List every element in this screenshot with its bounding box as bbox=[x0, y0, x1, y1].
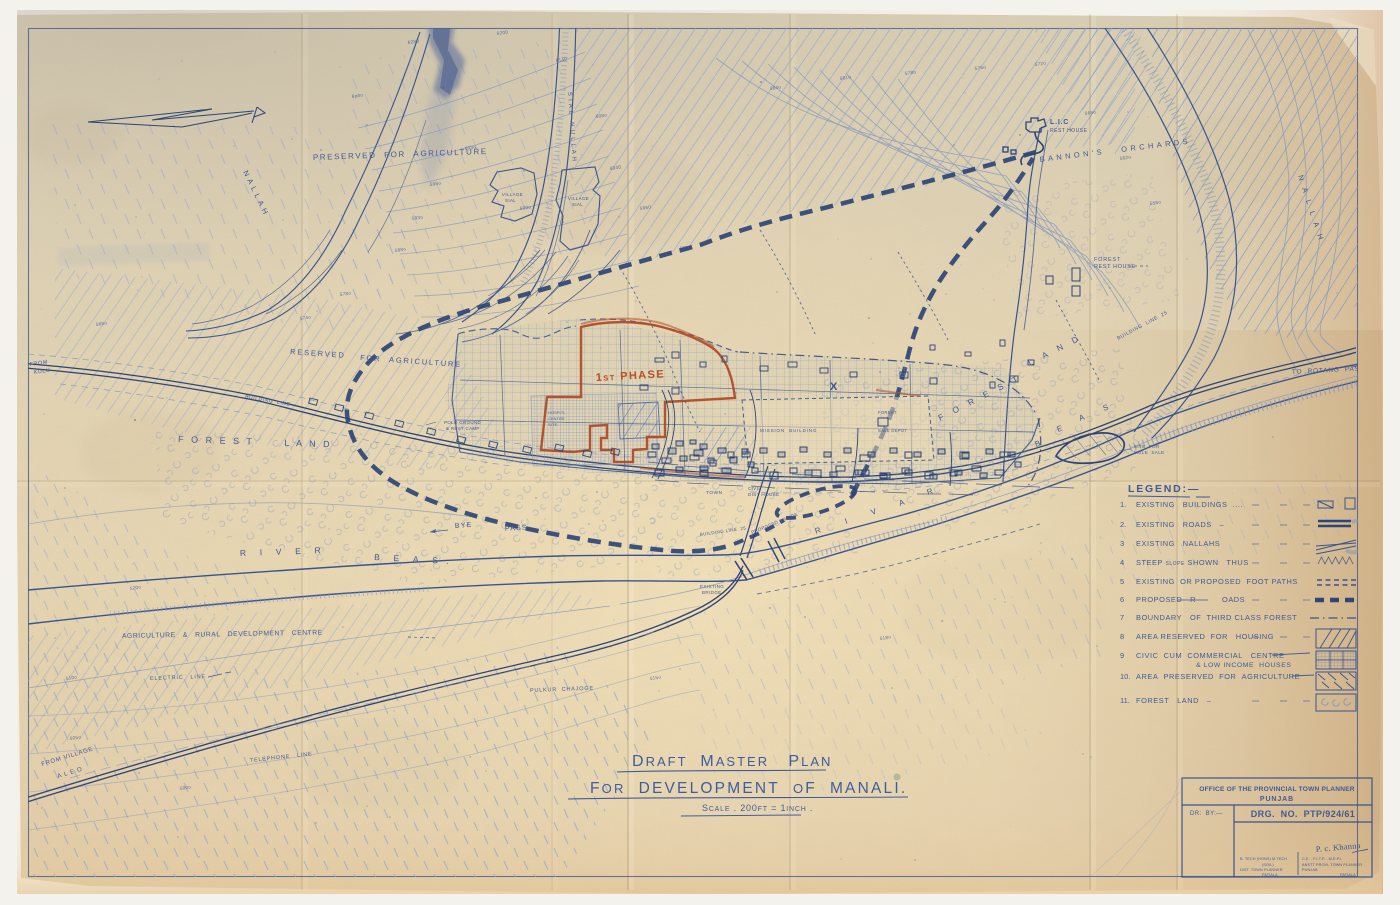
svg-text:EXISTING BUILDINGS ....: EXISTING BUILDINGS .... bbox=[1136, 500, 1243, 509]
svg-text:FOREST LAND –: FOREST LAND – bbox=[1136, 696, 1212, 705]
svg-text:AREA PRESERVED FOR AGRICULT: AREA PRESERVED FOR AGRICULTURE bbox=[1136, 672, 1300, 681]
svg-text:BRIDGE: BRIDGE bbox=[702, 590, 722, 595]
svg-text:FOREST: FOREST bbox=[878, 410, 897, 415]
svg-text:PATIALA: PATIALA bbox=[1340, 873, 1356, 877]
svg-text:SITE FOR: SITE FOR bbox=[1134, 444, 1160, 449]
svg-text:6: 6 bbox=[1120, 595, 1124, 604]
svg-text:LEGEND:—: LEGEND:— bbox=[1128, 483, 1200, 495]
svg-text:TOWN: TOWN bbox=[706, 490, 723, 496]
svg-text:VILLAGE: VILLAGE bbox=[502, 192, 523, 197]
svg-text:VILLAGE: VILLAGE bbox=[568, 196, 589, 201]
svg-text:PROPOSED R OADS: PROPOSED R OADS bbox=[1136, 595, 1245, 604]
svg-text:BYE: BYE bbox=[455, 522, 473, 530]
svg-text:L.I.C: L.I.C bbox=[1050, 119, 1069, 126]
svg-text:PATIALA: PATIALA bbox=[1262, 873, 1278, 877]
svg-text:11.: 11. bbox=[1120, 696, 1130, 705]
svg-text:SITE...: SITE... bbox=[548, 423, 561, 427]
svg-text:PUNJAB: PUNJAB bbox=[1302, 868, 1318, 872]
svg-text:8: 8 bbox=[1120, 632, 1124, 641]
svg-text:MISSION BUILDING: MISSION BUILDING bbox=[760, 428, 817, 433]
svg-text:CIVIC CUM COMMERCIAL CENTR: CIVIC CUM COMMERCIAL CENTRE bbox=[1136, 651, 1284, 660]
svg-text:PUNJAB: PUNJAB bbox=[1260, 796, 1294, 803]
svg-text:STEEP SLOPE SHOWN THUS: STEEP SLOPE SHOWN THUS bbox=[1136, 558, 1249, 567]
svg-text:3: 3 bbox=[1120, 539, 1124, 548]
svg-text:FOR DEVELOPMENT OF MANALI.: FOR DEVELOPMENT OF MANALI. bbox=[590, 780, 907, 797]
svg-text:1.: 1. bbox=[1120, 500, 1126, 509]
svg-text:5: 5 bbox=[1120, 577, 1124, 586]
svg-text:& LOW INCOME HOUSES: & LOW INCOME HOUSES bbox=[1196, 662, 1291, 669]
svg-text:BOUNDARY OF THIRD CLASS FOR: BOUNDARY OF THIRD CLASS FOREST bbox=[1136, 613, 1297, 622]
svg-text:CENTRE: CENTRE bbox=[548, 417, 565, 421]
svg-text:EXISTING: EXISTING bbox=[700, 584, 724, 589]
svg-text:DRAFT MASTER PLAN: DRAFT MASTER PLAN bbox=[632, 753, 832, 770]
svg-text:EXISTING OR PROPOSED FOOT PA: EXISTING OR PROPOSED FOOT PATHS bbox=[1136, 577, 1298, 586]
svg-text:EXISTING ROADS –: EXISTING ROADS – bbox=[1136, 520, 1225, 529]
svg-text:SIAL: SIAL bbox=[505, 198, 516, 203]
svg-text:9: 9 bbox=[1120, 651, 1124, 660]
svg-text:DIST. TOWN PLANNER: DIST. TOWN PLANNER bbox=[1240, 868, 1283, 872]
svg-text:HOSPITL: HOSPITL bbox=[548, 411, 566, 415]
svg-text:AREA RESERVED FOR HOUSING: AREA RESERVED FOR HOUSING bbox=[1136, 632, 1274, 641]
svg-text:& REST CAMP: & REST CAMP bbox=[446, 426, 480, 431]
svg-text:EXISTING NALLAHS: EXISTING NALLAHS bbox=[1136, 539, 1220, 548]
svg-text:SALE DEPOT: SALE DEPOT bbox=[878, 428, 907, 433]
svg-text:DR: BY:—: DR: BY:— bbox=[1190, 811, 1223, 817]
svg-text:FOREST: FOREST bbox=[1094, 257, 1121, 263]
svg-text:(SOIL): (SOIL) bbox=[1262, 863, 1274, 867]
svg-text:7: 7 bbox=[1120, 613, 1124, 622]
svg-text:DRG. NO. PTP/924/61: DRG. NO. PTP/924/61 bbox=[1251, 809, 1355, 819]
svg-text:DIST HOUSE: DIST HOUSE bbox=[748, 492, 779, 497]
svg-text:2.: 2. bbox=[1120, 520, 1126, 529]
svg-text:POLO GROUND: POLO GROUND bbox=[444, 420, 482, 425]
svg-text:CIVIL: CIVIL bbox=[748, 486, 761, 491]
svg-text:10.: 10. bbox=[1120, 672, 1130, 681]
svg-text:C.E. , F.I.T.P. , M.E.P.I.: C.E. , F.I.T.P. , M.E.P.I. bbox=[1302, 857, 1342, 861]
svg-text:OFFICE OF THE PROVINCIAL TOWN: OFFICE OF THE PROVINCIAL TOWN PLANNER bbox=[1199, 786, 1355, 793]
svg-text:ANSTT PROVL TOWN PLANNER: ANSTT PROVL TOWN PLANNER bbox=[1302, 863, 1362, 867]
svg-text:SIAL: SIAL bbox=[572, 202, 583, 207]
svg-text:B. TECH (HONS) M.TECH: B. TECH (HONS) M.TECH bbox=[1240, 857, 1287, 861]
svg-text:REST HOUSE: REST HOUSE bbox=[1094, 264, 1136, 270]
svg-text:X: X bbox=[830, 381, 838, 393]
svg-text:4: 4 bbox=[1120, 558, 1124, 567]
svg-text:MULE SALE: MULE SALE bbox=[1134, 450, 1165, 455]
svg-text:REST HOUSE: REST HOUSE bbox=[1050, 128, 1088, 134]
